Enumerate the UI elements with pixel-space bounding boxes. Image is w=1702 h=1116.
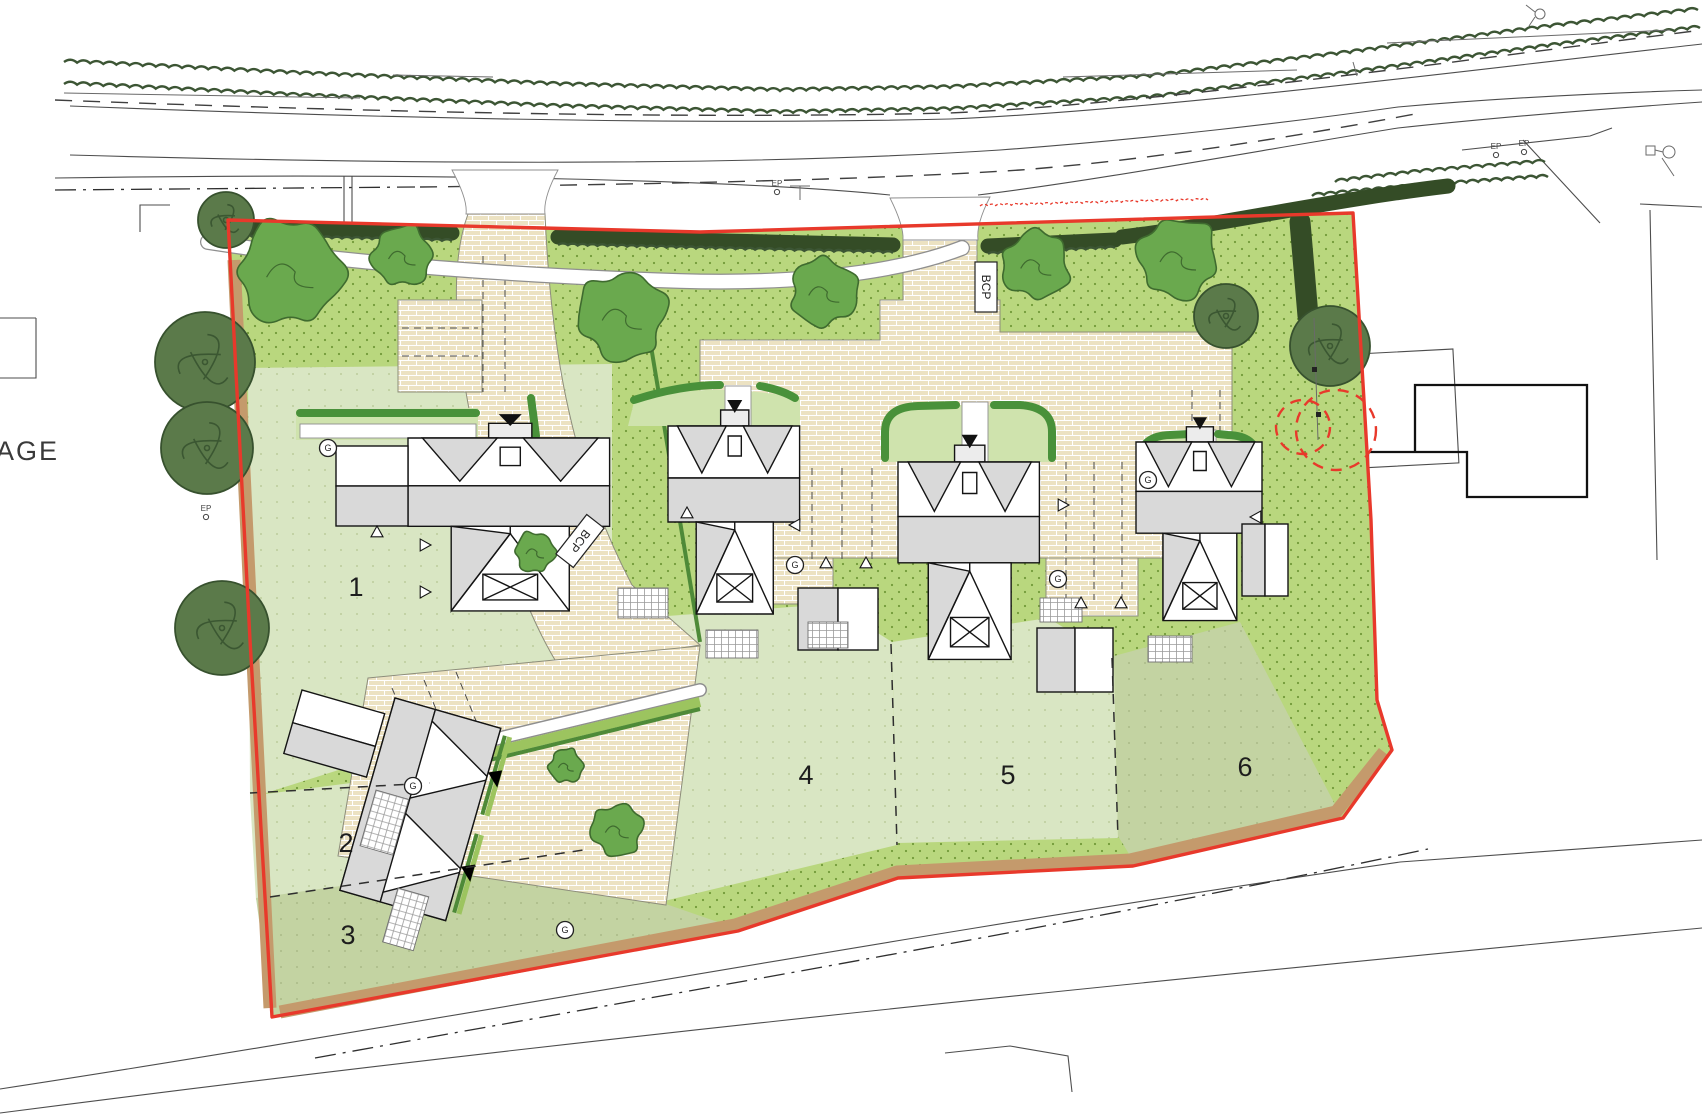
fence-post bbox=[1316, 412, 1321, 417]
field-mark-south bbox=[945, 1046, 1072, 1092]
front-walk-1 bbox=[300, 424, 476, 438]
gully-letter: G bbox=[324, 443, 331, 453]
plot-label-5: 5 bbox=[1000, 760, 1015, 790]
bcp-marker-1: BCP bbox=[975, 262, 997, 312]
plot-label-1: 1 bbox=[348, 572, 363, 602]
ep-label: EP bbox=[772, 179, 783, 188]
east-hedge bbox=[1300, 222, 1308, 316]
pole-icon bbox=[1663, 146, 1675, 158]
patio-plot-4b bbox=[706, 630, 758, 658]
ep-label: EP bbox=[201, 504, 212, 513]
entrance-posts bbox=[344, 176, 352, 222]
tree-icon bbox=[155, 312, 255, 412]
ep-circle bbox=[1521, 149, 1526, 154]
bcp-label: BCP bbox=[979, 275, 993, 300]
field-boundary-east bbox=[1640, 204, 1702, 560]
site-entrance-west bbox=[452, 170, 558, 214]
ep-circle bbox=[774, 189, 779, 194]
gully-marker: G bbox=[320, 440, 337, 457]
site-entrance-east bbox=[890, 197, 990, 240]
gully-letter: G bbox=[791, 560, 798, 570]
patio-plot-4 bbox=[618, 588, 668, 618]
gully-marker: G bbox=[1140, 472, 1157, 489]
boundary-dashdot-west bbox=[55, 187, 415, 190]
plot-label-3: 3 bbox=[340, 920, 355, 950]
frontage-road-south-edge bbox=[55, 102, 1702, 195]
tree-icon bbox=[175, 581, 269, 675]
ep-circle bbox=[203, 514, 208, 519]
top-hedgerow-icon bbox=[64, 26, 1700, 113]
gully-marker: G bbox=[787, 557, 804, 574]
bottom-road-edge2 bbox=[0, 928, 1702, 1113]
gully-marker: G bbox=[405, 778, 422, 795]
ep-label: EP bbox=[1491, 142, 1502, 151]
tree-icon bbox=[1194, 284, 1258, 348]
patio-plot-5 bbox=[808, 622, 848, 648]
ep-circle bbox=[1493, 152, 1498, 157]
neighbor-outline-west bbox=[0, 318, 36, 378]
gully-letter: G bbox=[1054, 574, 1061, 584]
pole-stay-icon bbox=[1655, 150, 1674, 176]
pole-base-icon bbox=[1646, 146, 1655, 155]
ep-label: EP bbox=[1519, 139, 1530, 148]
plot-label-4: 4 bbox=[798, 760, 813, 790]
fence-post bbox=[1312, 367, 1317, 372]
gully-marker: G bbox=[1050, 571, 1067, 588]
visitor-parking bbox=[398, 300, 482, 392]
pole-icon bbox=[1535, 9, 1545, 19]
tree-canopy bbox=[1194, 284, 1258, 348]
plot-label-6: 6 bbox=[1237, 752, 1252, 782]
gully-letter: G bbox=[409, 781, 416, 791]
patio-plot-6 bbox=[1148, 636, 1192, 662]
neighbor-outline-west2 bbox=[140, 205, 170, 232]
gully-letter: G bbox=[1144, 475, 1151, 485]
gully-marker: G bbox=[557, 922, 574, 939]
hedge-removal-line bbox=[980, 198, 1208, 206]
ep-marker: EP bbox=[772, 179, 783, 195]
garage-plot-1 bbox=[336, 446, 408, 526]
garage-plot-6 bbox=[1242, 524, 1288, 596]
garage-plot-5 bbox=[1037, 628, 1113, 692]
plot-label-2: 2 bbox=[338, 828, 353, 858]
ep-marker: EP bbox=[1491, 142, 1502, 158]
junction-lines bbox=[1462, 128, 1612, 223]
site-plan-canvas: AGE bbox=[0, 0, 1702, 1116]
tree-canopy bbox=[175, 581, 269, 675]
top-hedgerow-icon bbox=[64, 8, 1698, 91]
patio-plot-5b bbox=[1040, 598, 1082, 622]
site-plan-page: AGE bbox=[0, 0, 1702, 1116]
neighbor-label-partial: AGE bbox=[0, 436, 59, 466]
ep-marker: EP bbox=[201, 504, 212, 520]
ep-marker: EP bbox=[1519, 139, 1530, 155]
tree-canopy bbox=[155, 312, 255, 412]
frontage-road-north-edge bbox=[70, 90, 1702, 162]
neighbor-building-bold bbox=[1368, 385, 1587, 497]
pole-stay-icon bbox=[1526, 5, 1535, 26]
gully-letter: G bbox=[561, 925, 568, 935]
